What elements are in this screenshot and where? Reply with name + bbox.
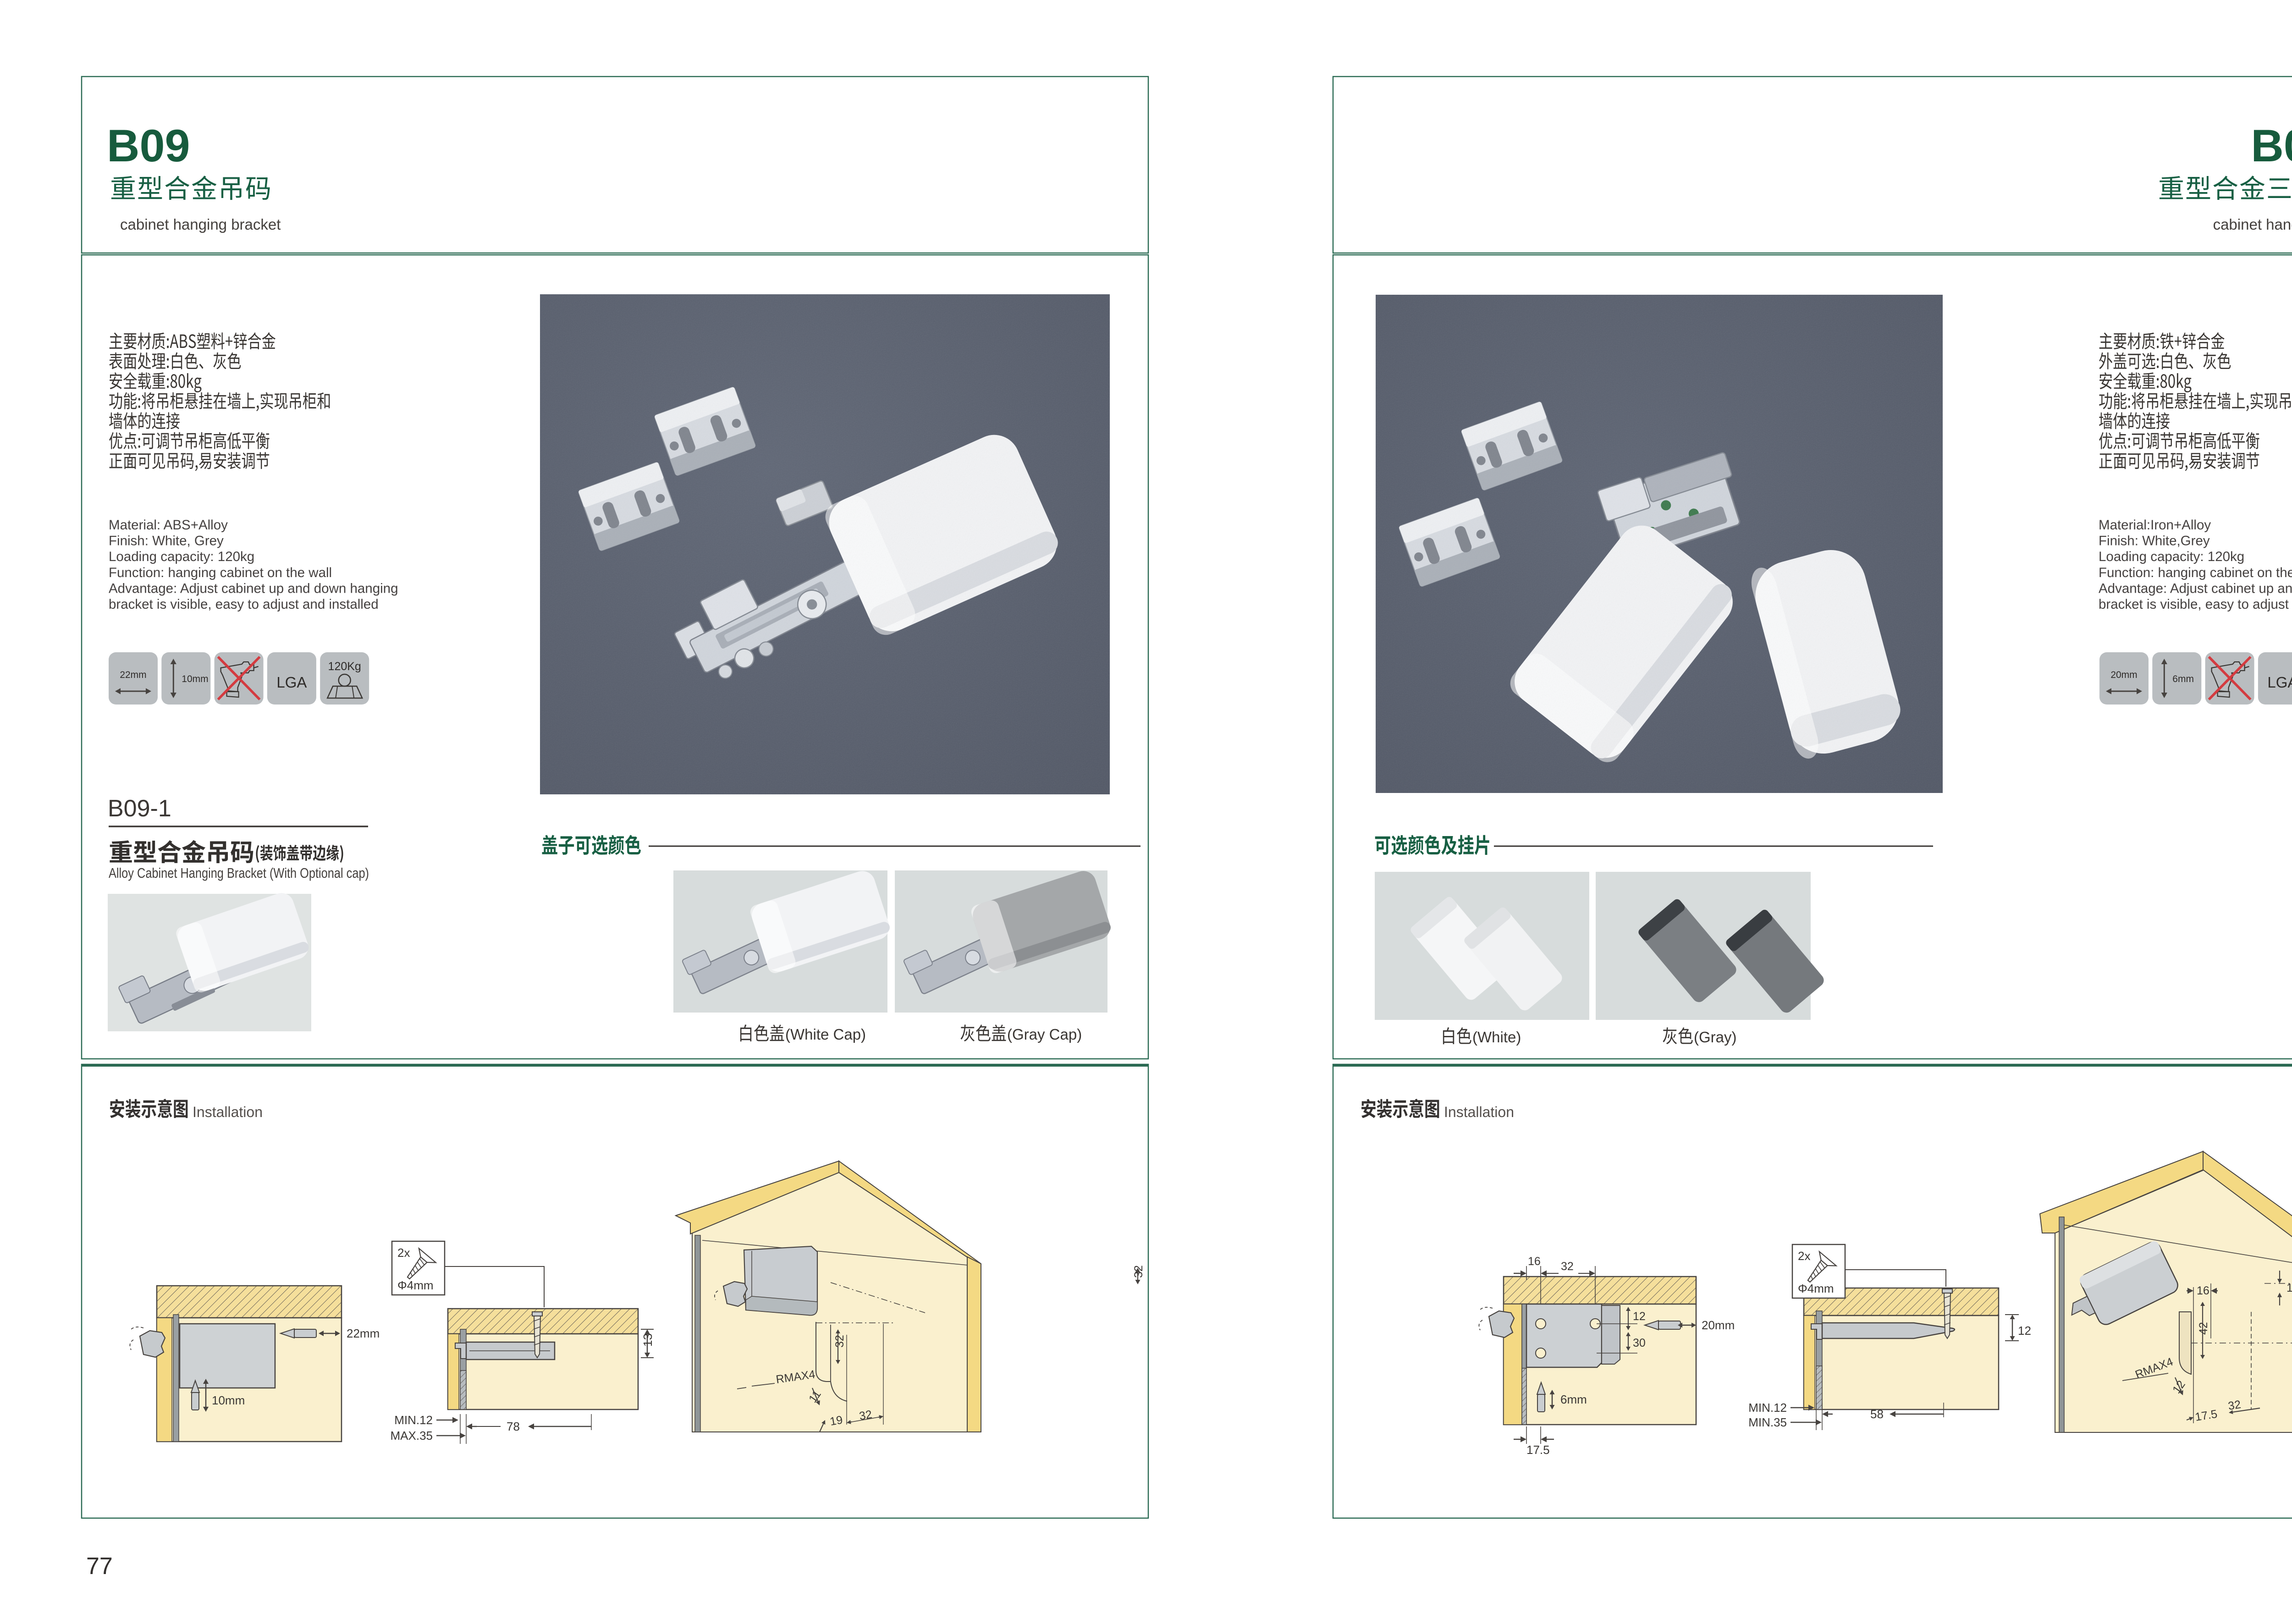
svg-text:B09-3: B09-3 bbox=[2251, 120, 2292, 171]
svg-text:cabinet hanging bracket: cabinet hanging bracket bbox=[120, 216, 281, 233]
svg-text:MAX.35: MAX.35 bbox=[391, 1429, 433, 1442]
svg-text:10mm: 10mm bbox=[212, 1393, 245, 1407]
svg-text:77: 77 bbox=[86, 1553, 113, 1580]
svg-text:32: 32 bbox=[2227, 1398, 2242, 1413]
svg-text:Finish: White,Grey: Finish: White,Grey bbox=[2099, 534, 2210, 549]
svg-text:(Gray Cap): (Gray Cap) bbox=[1007, 1026, 1082, 1043]
svg-text:bracket is visible, easy to ad: bracket is visible, easy to adjust and i… bbox=[2099, 597, 2292, 612]
svg-text:32: 32 bbox=[833, 1335, 846, 1348]
svg-text:16: 16 bbox=[2197, 1284, 2209, 1297]
svg-text:42: 42 bbox=[2197, 1322, 2210, 1335]
svg-text:Function: hanging cabinet on t: Function: hanging cabinet on the wall bbox=[109, 565, 332, 580]
svg-text:30: 30 bbox=[1633, 1337, 1646, 1349]
svg-text:B09: B09 bbox=[107, 120, 190, 171]
svg-text:6mm: 6mm bbox=[1560, 1393, 1587, 1406]
svg-text:Φ4mm: Φ4mm bbox=[1798, 1282, 1834, 1295]
svg-text:16: 16 bbox=[1528, 1255, 1541, 1268]
svg-text:32: 32 bbox=[1132, 1265, 1145, 1278]
svg-text:20mm: 20mm bbox=[2110, 670, 2137, 680]
svg-text:12: 12 bbox=[1633, 1310, 1646, 1323]
svg-text:Installation: Installation bbox=[193, 1104, 263, 1120]
svg-text:12: 12 bbox=[2286, 1282, 2292, 1294]
svg-text:Function: hanging cabinet on t: Function: hanging cabinet on the wall bbox=[2099, 565, 2292, 580]
svg-text:13: 13 bbox=[641, 1333, 655, 1347]
svg-text:Material:Iron+Alloy: Material:Iron+Alloy bbox=[2099, 517, 2211, 533]
svg-text:Loading capacity: 120kg: Loading capacity: 120kg bbox=[2099, 549, 2244, 564]
svg-text:(White): (White) bbox=[1472, 1029, 1521, 1046]
svg-text:2x: 2x bbox=[397, 1246, 410, 1260]
svg-text:6mm: 6mm bbox=[2172, 674, 2194, 684]
svg-text:Installation: Installation bbox=[1444, 1104, 1514, 1120]
svg-text:MIN.35: MIN.35 bbox=[1748, 1415, 1787, 1429]
svg-text:(Gray): (Gray) bbox=[1694, 1029, 1737, 1046]
svg-text:Loading capacity: 120kg: Loading capacity: 120kg bbox=[109, 549, 254, 564]
svg-text:10mm: 10mm bbox=[182, 674, 208, 684]
svg-text:MIN.12: MIN.12 bbox=[394, 1413, 433, 1427]
svg-text:Advantage: Adjust cabinet up a: Advantage: Adjust cabinet up and down ha… bbox=[109, 581, 398, 596]
svg-text:Advantage: Adjust cabinet up a: Advantage: Adjust cabinet up and down ha… bbox=[2099, 581, 2292, 596]
svg-text:(White Cap): (White Cap) bbox=[785, 1026, 866, 1043]
svg-text:22mm: 22mm bbox=[347, 1327, 380, 1340]
svg-text:LGA: LGA bbox=[2267, 674, 2292, 691]
svg-text:120Kg: 120Kg bbox=[328, 660, 361, 673]
svg-text:20mm: 20mm bbox=[1702, 1318, 1735, 1332]
svg-text:bracket is visible, easy to ad: bracket is visible, easy to adjust and i… bbox=[109, 597, 379, 612]
svg-text:78: 78 bbox=[507, 1420, 520, 1433]
svg-text:58: 58 bbox=[1870, 1407, 1884, 1421]
svg-text:Alloy Cabinet Hanging Bracket: Alloy Cabinet Hanging Bracket (With Opti… bbox=[109, 865, 369, 881]
svg-text:17.5: 17.5 bbox=[1526, 1443, 1550, 1457]
svg-text:LGA: LGA bbox=[276, 674, 307, 691]
svg-text:32: 32 bbox=[858, 1408, 873, 1423]
svg-text:32: 32 bbox=[1561, 1260, 1574, 1273]
svg-text:Φ4mm: Φ4mm bbox=[397, 1278, 434, 1292]
svg-text:22mm: 22mm bbox=[120, 670, 146, 680]
svg-text:MIN.12: MIN.12 bbox=[1748, 1401, 1787, 1415]
svg-text:Material: ABS+Alloy: Material: ABS+Alloy bbox=[109, 517, 228, 533]
svg-text:2x: 2x bbox=[1798, 1249, 1810, 1263]
svg-text:B09-1: B09-1 bbox=[108, 795, 171, 822]
svg-text:Finish: White, Grey: Finish: White, Grey bbox=[109, 534, 224, 549]
svg-text:12: 12 bbox=[2018, 1324, 2031, 1338]
svg-text:cabinet hanging bracket: cabinet hanging bracket bbox=[2213, 216, 2292, 233]
svg-text:19: 19 bbox=[829, 1414, 843, 1428]
